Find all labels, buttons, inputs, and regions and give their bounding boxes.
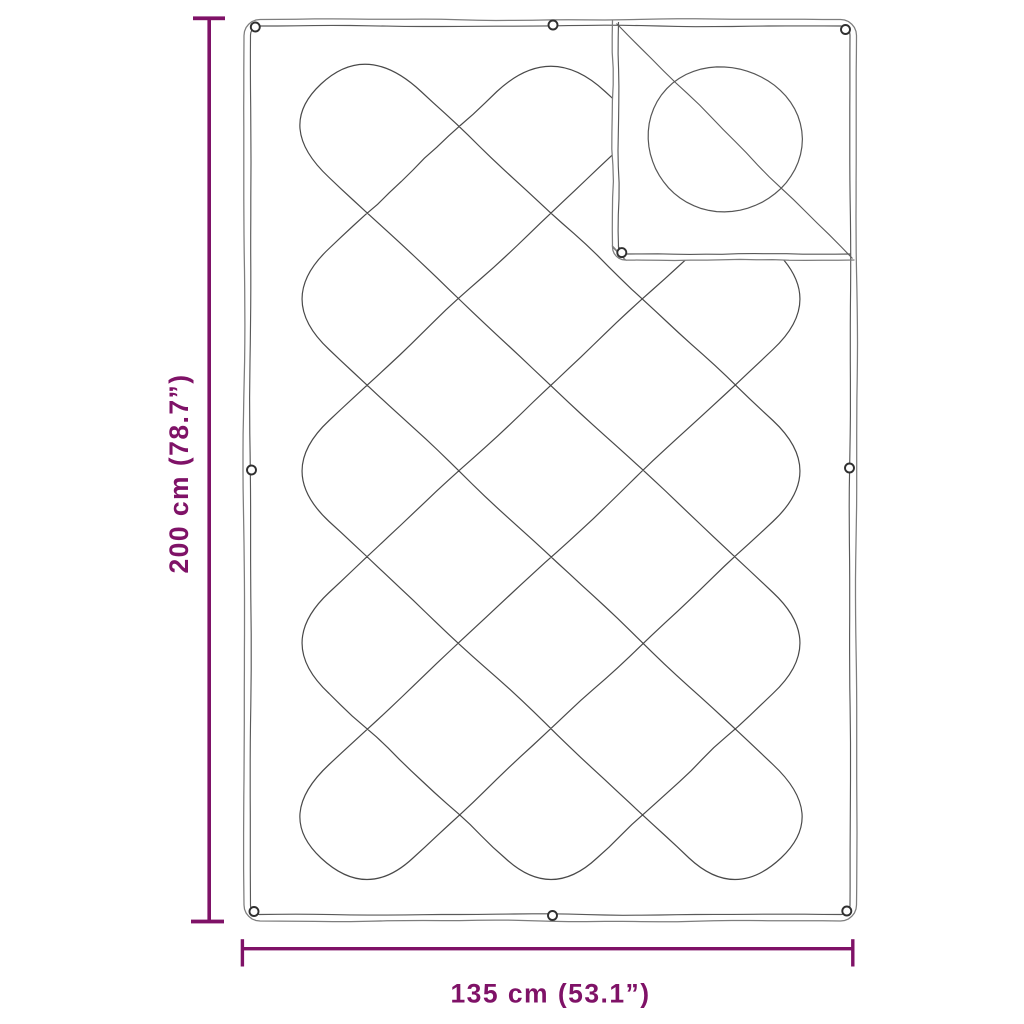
svg-text:200 cm (78.7”): 200 cm (78.7”): [164, 373, 194, 573]
svg-text:135 cm (53.1”): 135 cm (53.1”): [450, 978, 650, 1008]
